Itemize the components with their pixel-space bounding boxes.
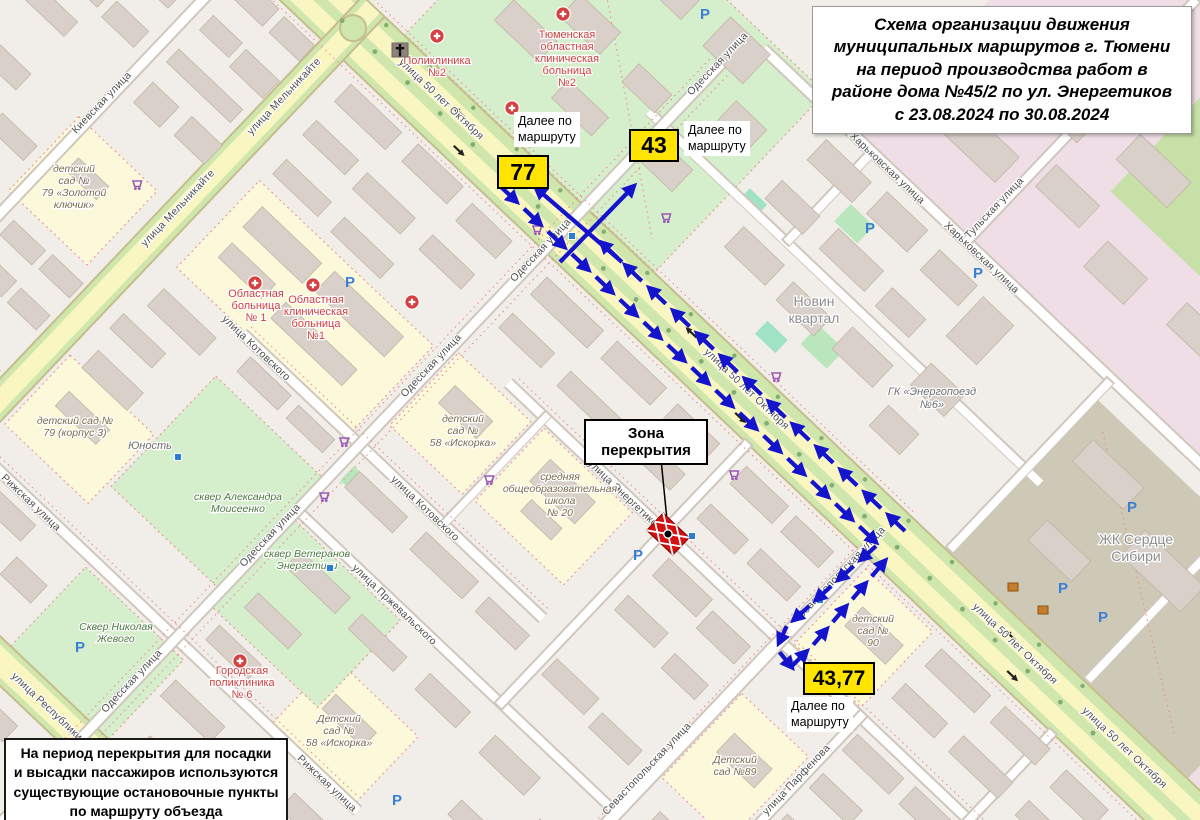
parking-icon (75, 639, 85, 656)
scheme-title: Схема организации движения муниципальных… (812, 6, 1192, 134)
parking-icon (392, 792, 402, 809)
busstop-icon (689, 533, 696, 540)
parking-icon (700, 6, 710, 23)
route-badge-77: 77 (497, 155, 549, 189)
poi-label: детский сад №79 (корпус 3) (37, 415, 113, 439)
closure-zone-label: Зона перекрытия (584, 419, 708, 465)
constr-icon (1038, 606, 1048, 614)
parking-icon (633, 547, 643, 564)
cross-icon (556, 7, 570, 21)
cross-icon (306, 278, 320, 292)
busstop-icon (175, 454, 182, 461)
route-continues-label: Далее по маршруту (514, 112, 580, 147)
parking-icon (345, 274, 355, 291)
poi-label: Новинквартал (789, 293, 840, 326)
route-badge-43: 43 (629, 129, 679, 162)
parking-icon (865, 220, 875, 237)
cross-icon (248, 276, 262, 290)
parking-icon (1058, 580, 1068, 597)
parking-icon (973, 265, 983, 282)
cross-icon (233, 654, 247, 668)
church-icon (392, 43, 408, 57)
route-continues-label: Далее по маршруту (787, 697, 853, 732)
cross-icon (430, 29, 444, 43)
poi-label: Юность (128, 440, 172, 452)
constr-icon (1008, 583, 1018, 591)
parking-icon (1098, 609, 1108, 626)
notice-text: На период перекрытия для посадки и высад… (4, 738, 288, 820)
route-badge-43-77: 43,77 (803, 662, 875, 695)
busstop-icon (327, 565, 334, 572)
parking-icon (1127, 499, 1137, 516)
route-continues-label: Далее по маршруту (684, 121, 750, 156)
traffic-scheme-page: P (0, 0, 1200, 820)
poi-label: Детскийсад №89 (712, 754, 757, 778)
busstop-icon (569, 233, 576, 240)
cross-icon (405, 295, 419, 309)
